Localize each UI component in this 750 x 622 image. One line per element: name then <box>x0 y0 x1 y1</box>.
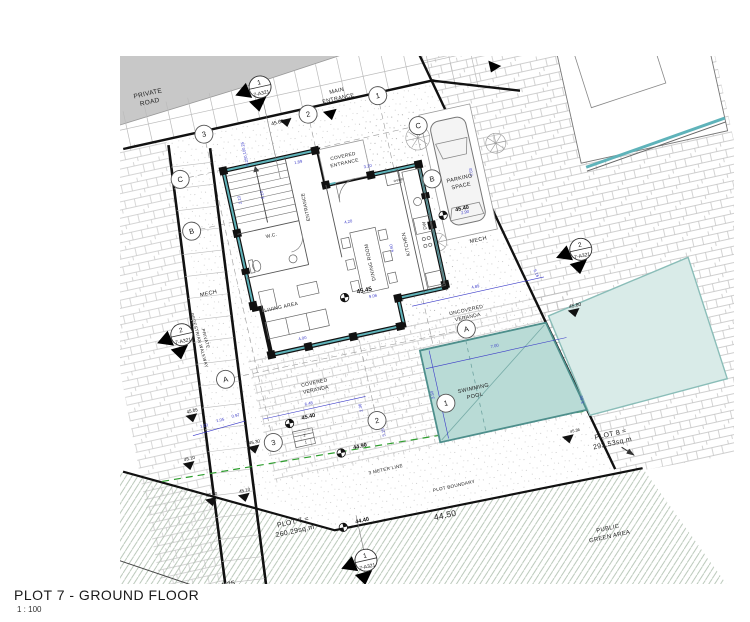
title-block: PLOT 7 - GROUND FLOOR 1 : 100 <box>14 587 199 614</box>
spot-triangle-marker <box>238 493 251 503</box>
sheet-title: PLOT 7 - GROUND FLOOR <box>14 587 199 603</box>
sheet-scale: 1 : 100 <box>17 605 199 614</box>
drawing-clip: 321321CCBBAA 17-A32127-A32127-A32117-A32… <box>0 0 750 622</box>
site-plan-sheet: 321321CCBBAA 17-A32127-A32127-A32117-A32… <box>0 0 750 622</box>
vehicle-entrance-label: VEHICLEENTRANCE <box>479 31 514 51</box>
section-flag-icon <box>249 97 269 114</box>
site-plan-drawing: 321321CCBBAA 17-A32127-A32127-A32117-A32… <box>0 0 750 622</box>
